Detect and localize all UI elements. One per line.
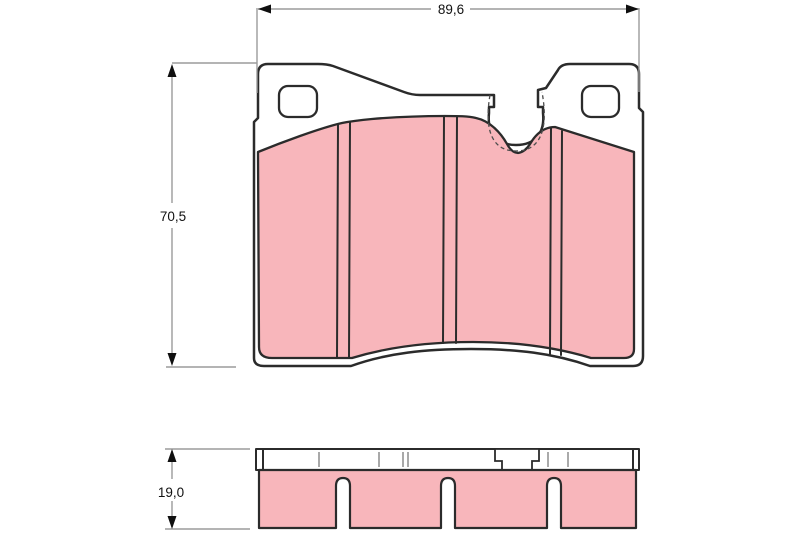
brake-pad-drawing: 89,6 70,5 19,0: [0, 0, 800, 533]
arrowhead-down: [168, 516, 177, 529]
arrowhead-right: [626, 5, 639, 14]
dimension-thickness: 19,0: [158, 449, 250, 529]
backplate-outline-side: [256, 449, 639, 470]
side-view: [256, 449, 639, 528]
width-dimension-label: 89,6: [438, 2, 464, 17]
groove-line: [443, 117, 444, 343]
dimension-height: 70,5: [160, 63, 257, 367]
friction-material-side: [259, 470, 636, 528]
arrowhead-up: [168, 64, 177, 77]
arrowhead-down: [168, 353, 177, 366]
right-ear-hole: [582, 86, 619, 117]
groove-line: [561, 131, 562, 355]
center-tab-side: [495, 449, 539, 470]
groove-line: [550, 128, 551, 354]
friction-material-front: [258, 116, 634, 358]
groove-line: [349, 122, 350, 357]
left-ear-hole: [279, 86, 317, 117]
drawing-canvas: 89,6 70,5 19,0: [0, 0, 800, 533]
height-dimension-label: 70,5: [160, 209, 186, 224]
arrowhead-up: [168, 449, 177, 462]
arrowhead-left: [258, 5, 271, 14]
groove-line: [456, 117, 457, 343]
groove-line: [337, 124, 338, 357]
thickness-dimension-label: 19,0: [158, 485, 184, 500]
front-view: [254, 64, 643, 366]
